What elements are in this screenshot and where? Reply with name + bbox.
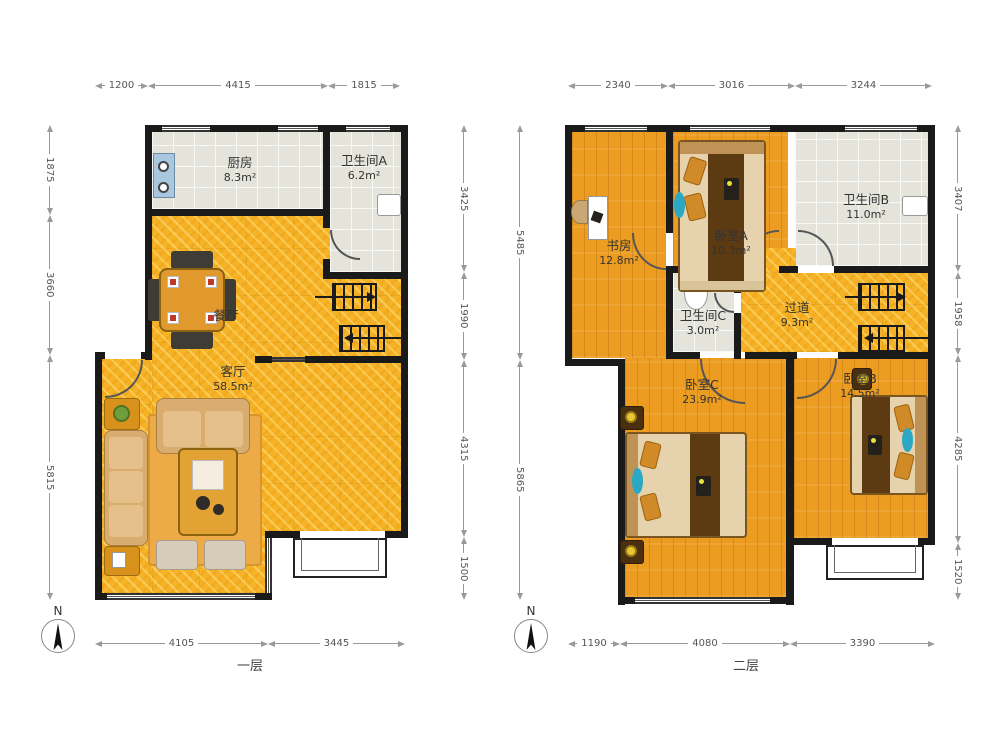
- dim-right: 1520: [952, 543, 963, 600]
- bathroom-c-label: 卫生间C 3.0m²: [653, 308, 753, 339]
- north-label: N: [527, 604, 536, 618]
- floor-plan-second: 书房 12.8m² 卧室A 10.3m² 卫生间B 11.0m² 卫生间C 3.…: [0, 0, 1000, 750]
- wall: [786, 352, 794, 605]
- dim-top: 3244: [795, 80, 932, 91]
- bedroom-c-label: 卧室C 23.9m²: [652, 377, 752, 408]
- bed: [625, 432, 747, 538]
- dim-right: 3407: [952, 125, 963, 272]
- wall: [745, 352, 797, 359]
- compass-needle-icon: [514, 619, 548, 653]
- wall: [565, 359, 625, 366]
- wall: [794, 538, 832, 545]
- nightstand: [620, 540, 644, 564]
- bay-window: [826, 545, 924, 580]
- wall: [928, 125, 935, 545]
- floor-two-label: 二层: [696, 655, 796, 674]
- bedroom-a-label: 卧室A 10.3m²: [681, 228, 781, 259]
- bathroom-b-label: 卫生间B 11.0m²: [816, 192, 916, 223]
- bed: [850, 395, 928, 495]
- dim-left: 5485: [514, 125, 525, 360]
- dim-right: 1958: [952, 272, 963, 355]
- dim-bottom: 3390: [790, 638, 935, 649]
- nightstand: [620, 406, 644, 430]
- window: [690, 125, 770, 132]
- wall: [666, 352, 700, 359]
- compass: N: [512, 604, 550, 653]
- window: [635, 597, 770, 604]
- bed: [678, 140, 766, 292]
- accent-cushion: [632, 468, 643, 494]
- stair-arrow-up: [845, 296, 898, 298]
- wall: [779, 266, 798, 273]
- accent-cushion: [902, 428, 913, 452]
- wall: [834, 266, 935, 273]
- accent-cushion: [674, 192, 685, 218]
- bedroom-b-label: 卧室B 14.5m²: [810, 371, 910, 402]
- dim-bottom: 1190: [568, 638, 620, 649]
- study-label: 书房 12.8m²: [569, 238, 669, 269]
- dim-top: 3016: [668, 80, 795, 91]
- wall: [666, 125, 673, 233]
- dim-right: 4285: [952, 355, 963, 543]
- dim-top: 2340: [568, 80, 668, 91]
- stair-arrow-down: [872, 337, 928, 339]
- dim-bottom: 4080: [620, 638, 790, 649]
- wall: [618, 359, 625, 605]
- window: [845, 125, 917, 132]
- desk-chair: [571, 200, 588, 224]
- wall: [838, 352, 935, 359]
- hallway-label: 过道 9.3m²: [747, 300, 847, 331]
- dim-left: 5865: [514, 360, 525, 600]
- window: [585, 125, 647, 132]
